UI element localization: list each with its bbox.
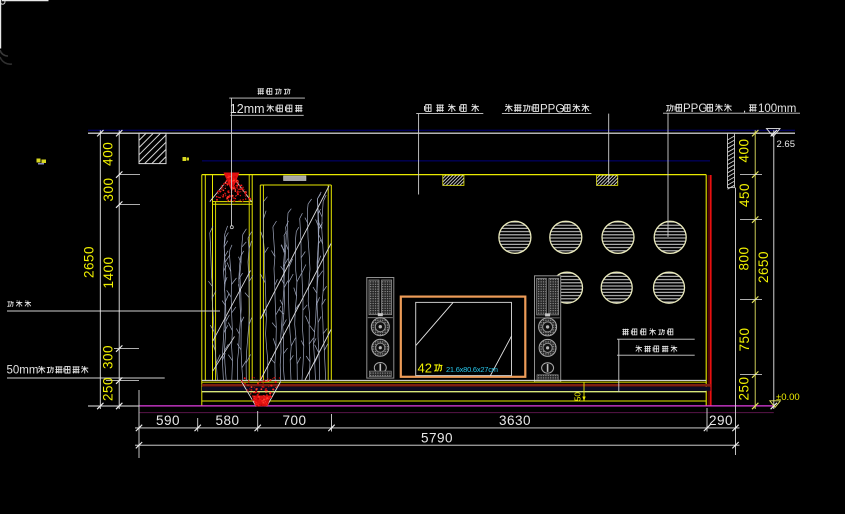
svg-text:450: 450 (737, 183, 752, 207)
svg-text:2.65: 2.65 (777, 139, 796, 150)
svg-text:±0.00: ±0.00 (776, 392, 800, 403)
svg-text:12mm: 12mm (230, 102, 265, 116)
svg-text:2650: 2650 (82, 246, 97, 278)
svg-text:580: 580 (215, 413, 239, 428)
svg-text:290: 290 (709, 413, 733, 428)
svg-text:400: 400 (101, 142, 116, 166)
svg-text:3630: 3630 (499, 413, 531, 428)
svg-text:750: 750 (737, 327, 752, 351)
svg-text:250: 250 (100, 377, 115, 401)
svg-text:800: 800 (737, 246, 752, 270)
svg-text:300: 300 (100, 345, 115, 369)
svg-text:2650: 2650 (756, 251, 771, 283)
svg-text:400: 400 (737, 138, 752, 162)
svg-text:42: 42 (418, 361, 432, 376)
svg-text:50: 50 (574, 392, 583, 401)
svg-text:5790: 5790 (421, 431, 453, 446)
svg-text:250: 250 (737, 376, 752, 400)
svg-text:590: 590 (156, 413, 180, 428)
svg-text:1400: 1400 (101, 256, 116, 288)
svg-text:300: 300 (101, 177, 116, 201)
svg-text:700: 700 (282, 413, 306, 428)
svg-text:21.6x80.6x27cm: 21.6x80.6x27cm (446, 365, 498, 374)
svg-text:50mm: 50mm (7, 365, 39, 377)
